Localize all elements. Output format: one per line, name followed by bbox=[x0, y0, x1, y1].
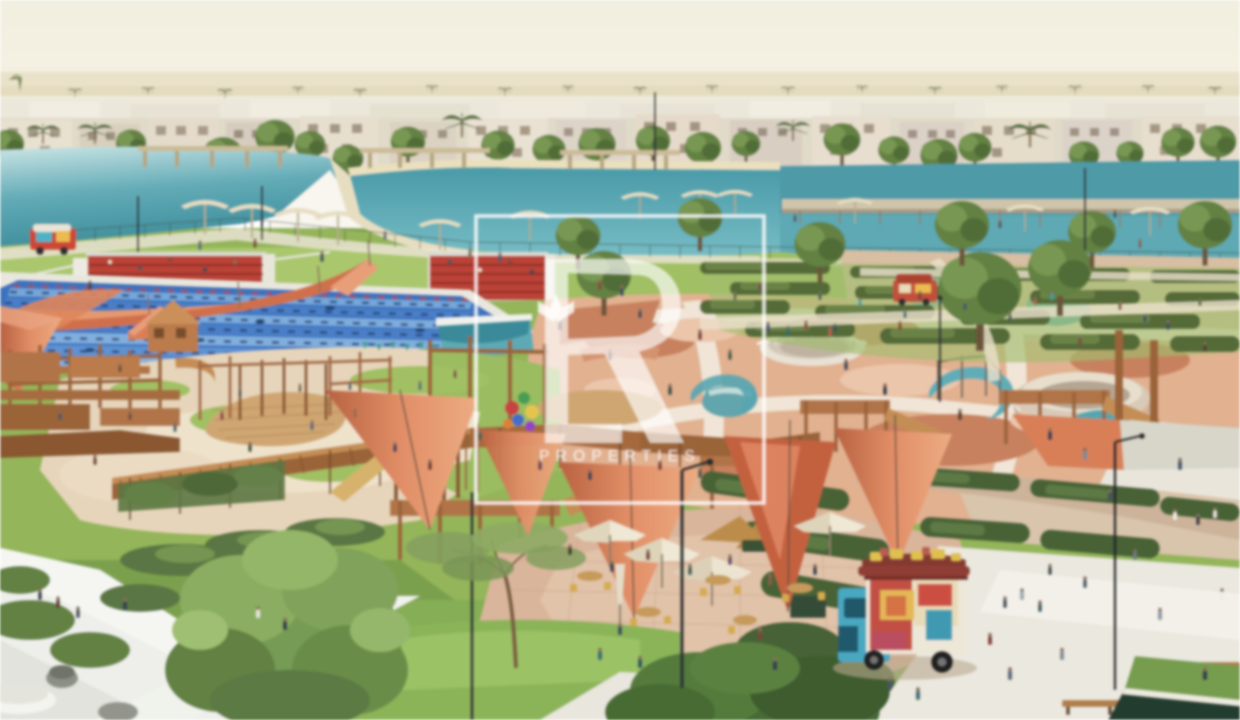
svg-text:PROPERTIES: PROPERTIES bbox=[539, 448, 701, 465]
